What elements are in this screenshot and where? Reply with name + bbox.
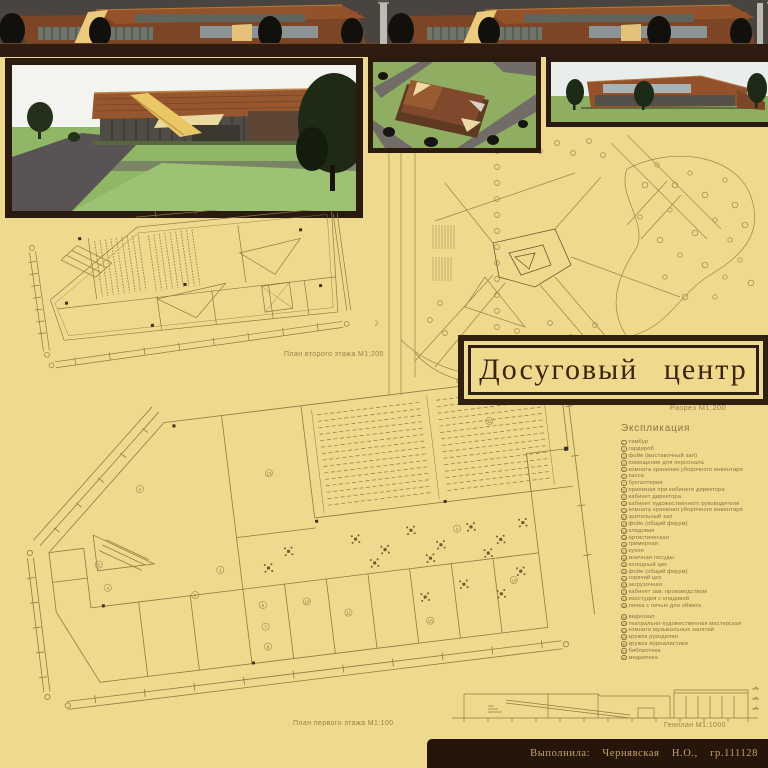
explication-item: 23 кабинет зав. производством xyxy=(621,589,767,596)
item-label: лепка с печью для обжига xyxy=(629,603,702,609)
item-label: изостудия с кладовой xyxy=(629,596,690,602)
item-label: фойе (выставочный зал) xyxy=(629,453,698,459)
svg-text:11: 11 xyxy=(346,610,352,616)
item-label: фойе (общий форум) xyxy=(629,521,688,527)
render-aerial-image xyxy=(373,62,536,148)
explication-item: 32 медиатека xyxy=(621,654,767,661)
item-label: видеозал xyxy=(629,614,655,620)
explication-item: 3 фойе (выставочный зал) xyxy=(621,453,767,460)
item-label: артистическая xyxy=(629,535,669,541)
item-label: кабинет зав. производством xyxy=(629,589,707,595)
title-block: Досуговый центр xyxy=(468,345,759,395)
item-label: бухгалтерия xyxy=(629,480,663,486)
second-floor-plan-label: План второго этажа М1:200 xyxy=(284,351,384,358)
item-number: 7 xyxy=(621,480,627,486)
explication-item: 8 приемная при кабинете директора xyxy=(621,487,767,494)
item-label: приемная при кабинете директора xyxy=(629,487,725,493)
item-label: комната хранения уборочного инвентаря xyxy=(629,467,743,473)
render-perspective-side xyxy=(546,57,768,127)
item-number: 3 xyxy=(621,453,627,459)
item-label: кладовая xyxy=(629,528,655,534)
explication-item: 10 кабинет художественного руководителя xyxy=(621,500,767,507)
item-label: кабинет директора xyxy=(629,494,682,500)
item-number: 10 xyxy=(621,501,627,507)
poster-title: Досуговый центр xyxy=(479,353,747,387)
explication-item: 30 кружок журналистики xyxy=(621,641,767,648)
item-number: 13 xyxy=(621,521,627,527)
explication-item: 5 комната хранения уборочного инвентаря xyxy=(621,466,767,473)
explication-item: 31 библиотека xyxy=(621,647,767,654)
item-label: помещение для персонала xyxy=(629,460,704,466)
item-number: 25 xyxy=(621,603,627,609)
svg-text:9: 9 xyxy=(456,526,460,531)
item-number: 11 xyxy=(621,508,627,514)
explication-item: 27 театрально-художественная мастерская xyxy=(621,620,767,627)
credit-bar: Выполнила: Чернявская Н.О., гр.111128 xyxy=(427,739,768,768)
explication-item: 6 касса xyxy=(621,473,767,480)
credit-text: Выполнила: Чернявская Н.О., гр.111128 xyxy=(530,748,758,759)
explication-item: 21 горячий цех xyxy=(621,575,767,582)
item-label: кружок рукоделия xyxy=(629,634,678,640)
svg-text:7: 7 xyxy=(264,625,268,630)
explication-item: 19 холодный цех xyxy=(621,561,767,568)
item-number: 17 xyxy=(621,548,627,554)
item-number: 8 xyxy=(621,487,627,493)
item-label: касса xyxy=(629,473,644,479)
item-number: 2 xyxy=(621,446,627,452)
item-label: горячий цех xyxy=(629,575,662,581)
item-number: 32 xyxy=(621,655,627,661)
item-label: тамбур xyxy=(629,439,649,445)
explication-list: 1 тамбур 2 гардероб 3 фойе (выставочный … xyxy=(621,439,767,661)
item-number: 24 xyxy=(621,596,627,602)
item-number: 9 xyxy=(621,494,627,500)
presentation-board: План второго этажа М1:200 xyxy=(0,0,768,768)
item-number: 15 xyxy=(621,535,627,541)
item-number: 29 xyxy=(621,634,627,640)
svg-text:14: 14 xyxy=(511,578,517,584)
explication-item: 13 фойе (общий форум) xyxy=(621,521,767,528)
item-number: 30 xyxy=(621,641,627,647)
item-label: кружок журналистики xyxy=(629,641,688,647)
svg-text:15: 15 xyxy=(427,618,433,624)
elevation-strip-image xyxy=(0,0,768,57)
item-label: комната музыкальных занятий xyxy=(629,627,715,633)
render-aerial xyxy=(368,57,541,153)
item-label: кабинет художественного руководителя xyxy=(629,501,740,507)
explication-item: 28 комната музыкальных занятий xyxy=(621,627,767,634)
explication-item: 2 гардероб xyxy=(621,446,767,453)
item-number: 23 xyxy=(621,589,627,595)
item-label: зрительный зал xyxy=(629,514,673,520)
item-label: медиатека xyxy=(629,655,658,661)
item-number: 16 xyxy=(621,542,627,548)
explication-item: 20 фойе (общий форум) xyxy=(621,568,767,575)
item-number: 31 xyxy=(621,648,627,654)
item-number: 20 xyxy=(621,569,627,575)
item-number: 28 xyxy=(621,628,627,634)
item-number: 26 xyxy=(621,614,627,620)
item-number: 4 xyxy=(621,460,627,466)
render-main-image xyxy=(12,65,356,211)
item-number: 19 xyxy=(621,562,627,568)
first-floor-plan-label: План первого этажа М1:100 xyxy=(293,720,393,727)
explication-item: 12 зрительный зал xyxy=(621,514,767,521)
explication-item: 29 кружок рукоделия xyxy=(621,634,767,641)
explication-item: 26 видеозал xyxy=(621,613,767,620)
explication-item: 9 кабинет директора xyxy=(621,493,767,500)
item-label: загрузочная xyxy=(629,582,662,588)
section-label: Разрез М1:200 xyxy=(670,403,726,412)
item-label: гримерная xyxy=(629,541,658,547)
item-number: 1 xyxy=(621,440,627,446)
item-label: фойе (общий форум) xyxy=(629,569,688,575)
svg-text:12: 12 xyxy=(486,419,492,425)
item-label: холодный цех xyxy=(629,562,668,568)
explication-item: 22 загрузочная xyxy=(621,582,767,589)
explication-item: 14 кладовая xyxy=(621,527,767,534)
explication-item: 17 кухня xyxy=(621,548,767,555)
explication-item: 11 комната хранения уборочного инвентаря xyxy=(621,507,767,514)
svg-text:1: 1 xyxy=(219,568,223,573)
svg-text:6: 6 xyxy=(261,603,265,608)
render-perspective-main xyxy=(5,58,363,218)
item-label: театрально-художественная мастерская xyxy=(629,621,742,627)
item-number: 14 xyxy=(621,528,627,534)
svg-text:8: 8 xyxy=(267,644,271,649)
master-plan-label: Генплан М1:1000 xyxy=(664,722,726,729)
svg-text:2: 2 xyxy=(194,593,198,598)
explication-item: 7 бухгалтерия xyxy=(621,480,767,487)
explication-item: 25 лепка с печью для обжига xyxy=(621,602,767,609)
explication-item: 18 моечная посуды xyxy=(621,555,767,562)
item-number: 21 xyxy=(621,576,627,582)
item-label: гардероб xyxy=(629,446,654,452)
item-number: 27 xyxy=(621,621,627,627)
explication-item: 16 гримерная xyxy=(621,541,767,548)
item-number: 6 xyxy=(621,474,627,480)
svg-text:4: 4 xyxy=(106,585,110,590)
render-side-image xyxy=(551,62,768,122)
svg-text:3: 3 xyxy=(138,487,142,492)
svg-text:5: 5 xyxy=(97,562,101,567)
explication-item: 15 артистическая xyxy=(621,534,767,541)
item-number: 5 xyxy=(621,467,627,473)
item-label: кухня xyxy=(629,548,644,554)
item-label: моечная посуды xyxy=(629,555,674,561)
explication-heading: Экспликация xyxy=(621,423,690,434)
explication-item: 24 изостудия с кладовой xyxy=(621,595,767,602)
explication-item: 4 помещение для персонала xyxy=(621,459,767,466)
svg-text:10: 10 xyxy=(304,599,310,605)
explication-item: 1 тамбур xyxy=(621,439,767,446)
item-number: 12 xyxy=(621,514,627,520)
item-number: 18 xyxy=(621,555,627,561)
item-label: библиотека xyxy=(629,648,661,654)
item-number: 22 xyxy=(621,582,627,588)
svg-text:13: 13 xyxy=(266,471,272,477)
item-label: комната хранения уборочного инвентаря xyxy=(629,507,743,513)
